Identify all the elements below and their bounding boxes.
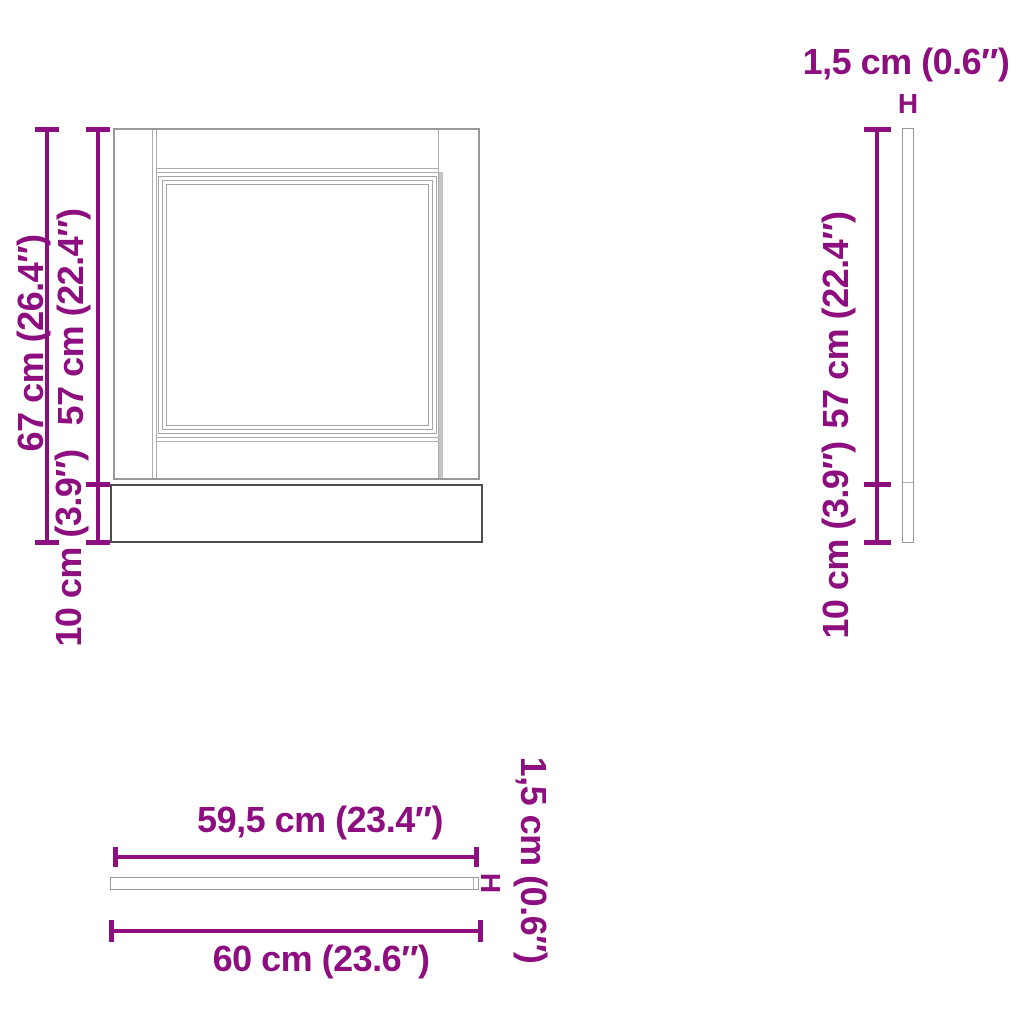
side-thickness-marker: H [898, 90, 918, 118]
side-height-bottom-tick [864, 540, 891, 545]
front-total-height-label: 67 cm (26.4″) [13, 235, 49, 452]
front-plinth-height-label: 10 cm (3.9″) [51, 449, 87, 646]
side-thickness-label: 1,5 cm (0.6″) [803, 44, 1010, 80]
side-panel-plinth-divider [903, 482, 913, 483]
front-door-height-bottom-tick [86, 540, 110, 545]
dimension-diagram: 67 cm (26.4″) 57 cm (22.4″) 10 cm (3.9″)… [0, 0, 1024, 1024]
side-height-top-tick [864, 127, 891, 132]
top-door-width-dimension-line [115, 855, 477, 859]
front-door-height-dimension-line [96, 129, 100, 543]
front-door-height-label: 57 cm (22.4″) [53, 209, 89, 426]
side-height-dimension-line [875, 129, 879, 543]
top-panel-strip [110, 877, 479, 890]
side-panel-profile [902, 128, 914, 543]
door-center-panel-frame [166, 184, 429, 426]
top-total-width-right-tick [478, 920, 483, 942]
front-total-height-top-tick [35, 127, 59, 132]
top-door-width-left-tick [113, 847, 118, 867]
top-door-width-right-tick [474, 847, 479, 867]
door-bottom-rail-line [157, 437, 438, 438]
top-thickness-label: 1,5 cm (0.6″) [515, 757, 551, 964]
top-total-width-dimension-line [111, 929, 482, 933]
door-left-stile-line [156, 130, 157, 478]
door-left-stile-line [152, 130, 153, 478]
top-total-width-left-tick [109, 920, 114, 942]
top-panel-edge-divider [473, 878, 474, 889]
door-top-rail-line [157, 168, 438, 169]
front-door-height-mid-tick [86, 482, 110, 487]
plinth-outline [110, 484, 483, 543]
top-total-width-label: 60 cm (23.6″) [213, 941, 430, 977]
door-bottom-rail-line [157, 441, 438, 442]
side-plinth-height-label: 10 cm (3.9″) [818, 441, 854, 638]
front-door-height-top-tick [86, 127, 110, 132]
side-height-mid-tick [864, 482, 891, 487]
side-door-height-label: 57 cm (22.4″) [818, 212, 854, 429]
door-right-stile-shadow [439, 172, 443, 478]
top-door-width-label: 59,5 cm (23.4″) [197, 802, 443, 838]
top-thickness-marker: H [476, 873, 504, 893]
door-top-rail-line [157, 172, 438, 173]
